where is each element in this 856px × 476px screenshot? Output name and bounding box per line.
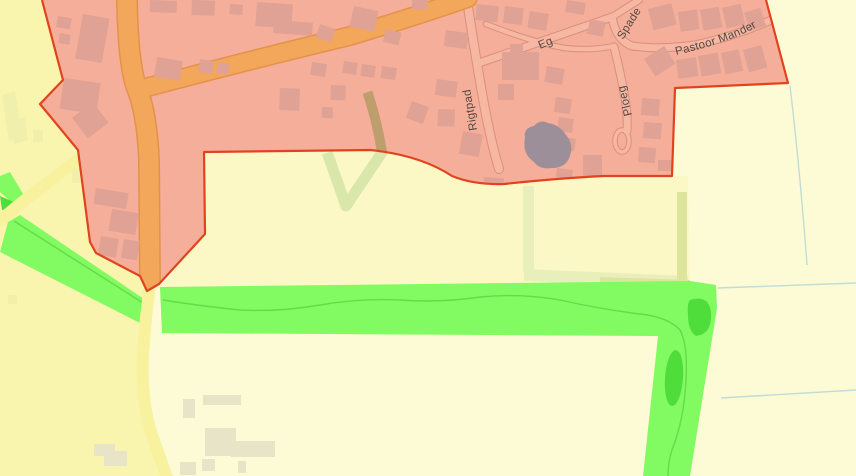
- map-viewport[interactable]: Rigtpad Eg Spade Ploeg Pastoor Mander: [0, 0, 856, 476]
- map-canvas[interactable]: Rigtpad Eg Spade Ploeg Pastoor Mander: [0, 0, 856, 476]
